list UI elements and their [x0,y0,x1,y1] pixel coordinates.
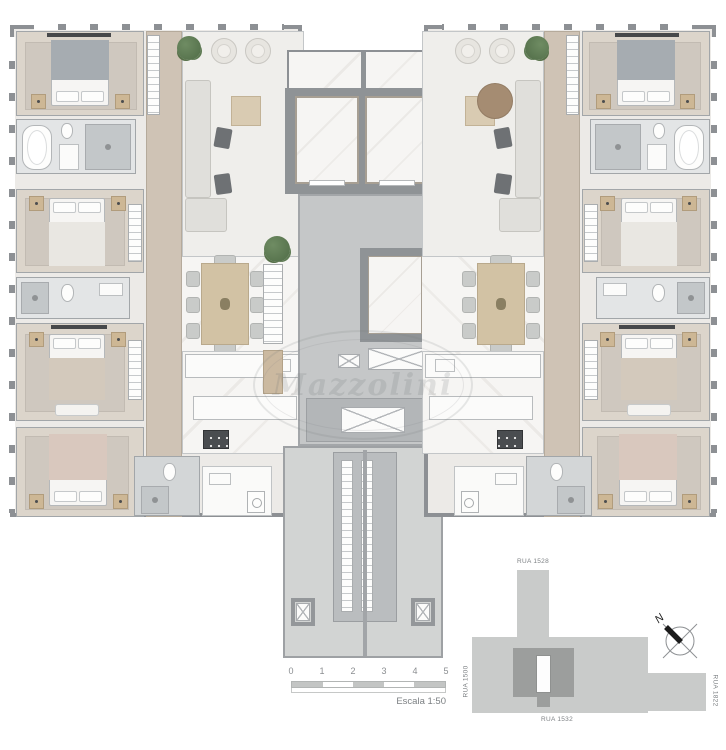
elevator-door [309,180,345,186]
service-wc [134,456,200,516]
service-elevator-frame [360,248,430,342]
stair-run [341,460,353,612]
apartment-unit-left [10,25,302,517]
service-elevator-car [368,256,422,334]
tv-console [47,33,111,37]
pillow [650,202,673,213]
duvet [621,358,677,400]
duvet [619,434,677,480]
north-arrow: N [648,604,712,668]
laundry [202,466,272,516]
nightstand [680,94,695,109]
armchair [245,38,271,64]
site-key-map: RUA 1528 RUA 1500 RUA 1532 RUA 1822 N [455,552,726,737]
toilet [652,284,665,302]
north-letter: N [653,612,667,626]
round-rug [477,83,513,119]
column-hatch [416,603,430,621]
pillow [78,202,101,213]
pillow [625,202,648,213]
scale-bar: 0 1 2 3 4 5 Escala 1:50 [288,666,458,712]
kitchen [182,351,304,454]
duct-shaft [338,354,360,368]
dining-chair [250,297,264,313]
stairwell [306,398,436,442]
pillow [53,202,76,213]
nightstand [115,94,130,109]
bedroom-4 [16,427,144,517]
highlighted-unit [536,655,551,693]
dining-chair [462,323,476,339]
armchair [455,38,481,64]
bedroom-1 [16,31,144,116]
pillow [622,91,645,102]
elevator-car [295,96,359,184]
tv-console [615,33,679,37]
pillow [650,338,673,349]
bathroom-1 [590,119,710,174]
site-block-tower [517,570,549,638]
lounge-chair [494,173,513,195]
living-room [422,31,544,257]
nightstand [600,332,615,347]
dining-chair [526,297,540,313]
pillow [81,91,104,102]
vanity [647,144,667,170]
bedroom-4-bed [49,434,107,506]
street-label-right: RUA 1822 [712,658,719,724]
pillow [53,338,76,349]
sofa-chaise [185,198,227,232]
bathroom-2 [596,277,710,319]
wardrobe [128,340,142,400]
armchair [211,38,237,64]
scale-tick: 4 [408,666,422,676]
duct-shaft [368,348,430,370]
duvet [621,222,677,266]
pillow [78,338,101,349]
bedroom-3 [16,323,144,421]
hall-wardrobe [147,35,160,115]
scale-tick: 1 [315,666,329,676]
bathroom-1 [16,119,136,174]
nightstand [682,332,697,347]
lounge-chair [493,127,512,149]
bedroom-1-bed [51,40,109,106]
site-block-east-wing [648,673,706,711]
kitchen-sink [435,359,455,372]
nightstand [111,332,126,347]
structural-column [291,598,315,626]
pillow [624,491,647,502]
sofa [185,80,211,198]
service-wc [526,456,592,516]
pillow [56,91,79,102]
dining-chair [526,271,540,287]
plant [264,236,290,262]
lounge-chair [213,127,232,149]
wardrobe [584,204,598,262]
nightstand [31,94,46,109]
tall-cabinet [263,350,283,394]
elevator-door [379,180,415,186]
laundry [454,466,524,516]
bedroom-2 [16,189,144,273]
bedroom-3 [582,323,710,421]
dining-chair [186,271,200,287]
bedroom-2-bed [621,198,677,266]
bedroom-3-bed [49,334,105,400]
scale-tick: 5 [439,666,453,676]
sink [603,283,627,296]
street-label-left: RUA 1500 [463,649,470,715]
shower [595,124,641,170]
shower [141,486,169,514]
scale-tick: 2 [346,666,360,676]
dining-chair [186,297,200,313]
nightstand [598,494,613,509]
column-hatch [296,603,310,621]
duvet [49,434,107,480]
dining-chair [250,271,264,287]
corridor-spine-wall [363,450,367,656]
window-band-left-wall [9,37,15,513]
cooktop [203,430,229,449]
nightstand [29,196,44,211]
bedroom-2-bed [49,198,105,266]
window-band-top-wall [442,24,692,30]
dining-chair [462,271,476,287]
bed-bench [55,404,99,416]
dining-area [182,257,304,351]
nightstand [600,196,615,211]
elevator-bank [285,88,441,194]
sofa [515,80,541,198]
armchair [489,38,515,64]
pillow [54,491,77,502]
bedroom-1-bed [617,40,675,106]
cooktop [497,430,523,449]
elevator-car [365,96,429,184]
structural-column [411,598,435,626]
vanity [59,144,79,170]
toilet [61,123,73,139]
wardrobe [128,204,142,262]
window-band-top-wall [34,24,284,30]
nightstand [29,494,44,509]
service-corridor [283,446,443,658]
dining-table [201,263,249,345]
plant [177,36,201,60]
dining-chair [250,323,264,339]
bathtub [22,125,52,170]
duvet [617,40,675,80]
bedroom-4 [582,427,710,517]
bedroom-1 [582,31,710,116]
nightstand [111,196,126,211]
toilet [653,123,665,139]
dining-chair [526,323,540,339]
toilet [163,463,176,481]
hall-wardrobe [566,35,579,115]
nightstand [596,94,611,109]
shower [557,486,585,514]
scale-bar-segments [291,681,446,688]
tv-console [51,325,107,329]
dining-chair [462,297,476,313]
duvet [51,40,109,80]
floor-plan-page: Mazzolini [0,0,726,750]
street-label-top: RUA 1528 [493,558,573,565]
window-band-left-wall [711,37,717,513]
lobby-divider-wall [361,52,366,90]
service-core [298,194,440,446]
pillow [649,491,672,502]
bedroom-3-bed [621,334,677,400]
laundry-sink [209,473,231,485]
nightstand [682,494,697,509]
sink [99,283,123,296]
shower [85,124,131,170]
nightstand [29,332,44,347]
kitchen-island [429,396,533,420]
dining-area [422,257,544,351]
toilet [61,284,74,302]
kitchen [422,351,544,454]
pillow [625,338,648,349]
stair-landing [341,407,405,433]
lounge-chair [214,173,233,195]
scale-bar-underbar [291,688,446,693]
tv-console [619,325,675,329]
shower [677,282,705,314]
dining-chair [186,323,200,339]
bed-bench [627,404,671,416]
toilet [550,463,563,481]
pillow [647,91,670,102]
bedroom-4-bed [619,434,677,506]
dining-table [477,263,525,345]
washing-machine [247,491,265,513]
street-label-bottom: RUA 1532 [517,716,597,723]
pantry-shelves [263,264,283,344]
sofa-chaise [499,198,541,232]
scale-tick: 0 [284,666,298,676]
plant [525,36,549,60]
duvet [49,358,105,400]
nightstand [682,196,697,211]
nightstand [113,494,128,509]
shower [21,282,49,314]
kitchen-island [193,396,297,420]
apartment-unit-right [424,25,716,517]
scale-tick: 3 [377,666,391,676]
bathtub [674,125,704,170]
building-footprint-stem [537,697,550,707]
duvet [49,222,105,266]
washing-machine [461,491,479,513]
wardrobe [584,340,598,400]
laundry-sink [495,473,517,485]
bathroom-2 [16,277,130,319]
bedroom-2 [582,189,710,273]
coffee-table [231,96,261,126]
scale-label: Escala 1:50 [288,696,446,707]
pillow [79,491,102,502]
